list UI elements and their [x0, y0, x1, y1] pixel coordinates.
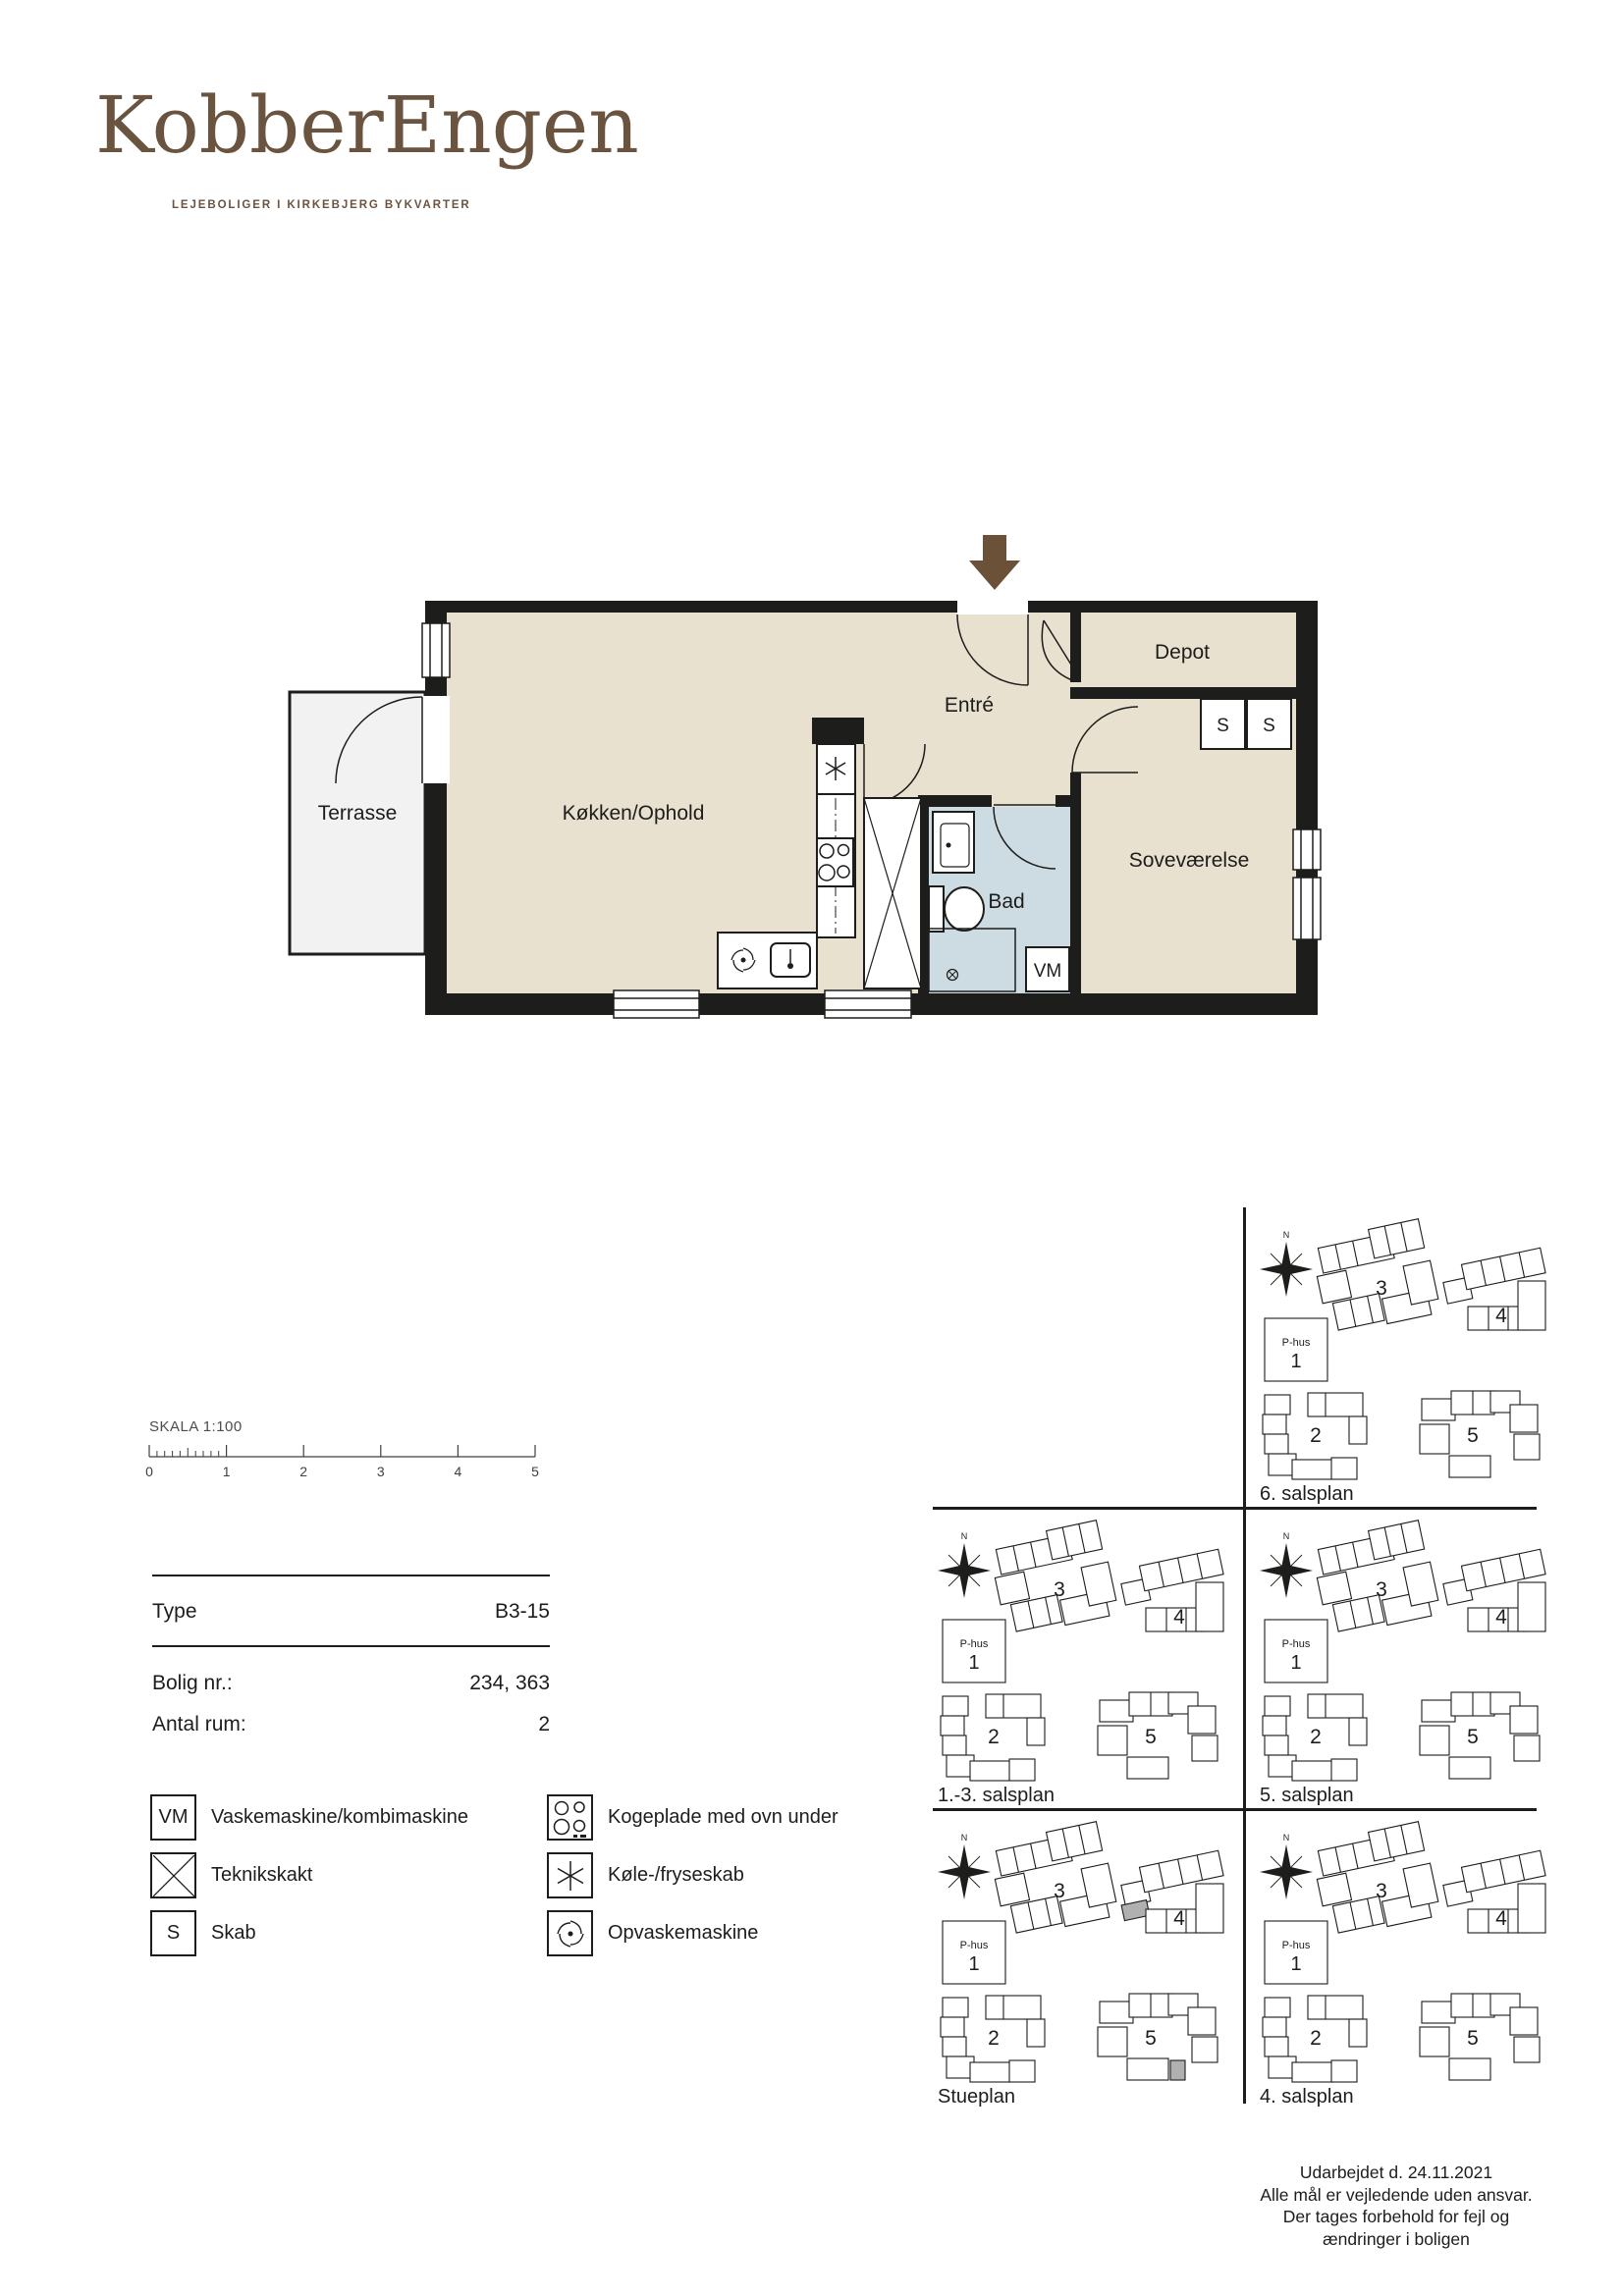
legend-item-fridge: Køle-/fryseskab — [547, 1852, 959, 1898]
legend-item-dishwasher: Opvaskemaskine — [547, 1910, 959, 1956]
legend-label: Skab — [211, 1922, 256, 1945]
building-4 — [1440, 1850, 1547, 1933]
building-label-2: 2 — [988, 1726, 1000, 1748]
label-storage: Depot — [1155, 641, 1210, 664]
label-washer: VM — [1034, 961, 1062, 982]
svg-text:4: 4 — [455, 1464, 462, 1479]
siteplan-map: N — [935, 1813, 1244, 2088]
window-bottom-1 — [614, 990, 699, 1018]
svg-text:0: 0 — [145, 1464, 153, 1479]
svg-text:N: N — [961, 1833, 968, 1842]
compass-icon: N — [938, 1531, 991, 1598]
window-bottom-2 — [825, 990, 911, 1018]
legend-item-washer: VM Vaskemaskine/kombimaskine — [150, 1794, 563, 1841]
legend-right: Kogeplade med ovn under Køle-/fryseskab — [547, 1794, 959, 1968]
building-4 — [1440, 1248, 1547, 1330]
compass-icon: N — [938, 1833, 991, 1899]
table-row: Bolig nr.: 234, 363 — [152, 1663, 550, 1704]
siteplan-panel-label: 1.-3. salsplan — [938, 1785, 1055, 1807]
table-row: Antal rum: 2 — [152, 1704, 550, 1745]
phus-label: P-hus — [1282, 1940, 1311, 1951]
svg-text:1: 1 — [223, 1464, 231, 1479]
siteplan-panel-label: Stueplan — [938, 2086, 1015, 2109]
building-label-1: 1 — [1290, 1351, 1301, 1372]
building-4 — [1118, 1549, 1225, 1631]
technical-shaft-symbol-icon — [150, 1852, 196, 1898]
siteplan-panel-label: 4. salsplan — [1260, 2086, 1354, 2109]
building-5 — [1420, 1692, 1540, 1779]
svg-text:5: 5 — [531, 1464, 539, 1479]
building-label-5: 5 — [1145, 2027, 1157, 2050]
washer-symbol-icon: VM — [150, 1794, 196, 1841]
footer-line: Der tages forbehold for fejl og — [1239, 2206, 1553, 2228]
building-label-4: 4 — [1173, 1907, 1185, 1930]
legend-label: Køle-/fryseskab — [608, 1864, 744, 1887]
label-cabinet-2: S — [1263, 716, 1275, 736]
svg-text:N: N — [1283, 1531, 1290, 1541]
label-terrace: Terrasse — [318, 802, 398, 825]
brand-tagline: LEJEBOLIGER I KIRKEBJERG BYKVARTER — [172, 199, 471, 211]
siteplan-map: N — [1257, 1813, 1566, 2088]
building-5 — [1420, 1391, 1540, 1477]
bath-sink-icon — [933, 812, 974, 873]
building-label-3: 3 — [1376, 1880, 1387, 1902]
building-label-3: 3 — [1376, 1277, 1387, 1300]
fridge-symbol-icon — [547, 1852, 593, 1898]
footer-line: ændringer i boligen — [1239, 2228, 1553, 2251]
building-label-2: 2 — [1310, 1726, 1322, 1748]
building-label-4: 4 — [1173, 1606, 1185, 1629]
kitchen-counter-bottom — [718, 933, 817, 988]
legend-label: Teknikskakt — [211, 1864, 312, 1887]
window-left — [422, 623, 450, 677]
siteplan-panel-label: 6. salsplan — [1260, 1483, 1354, 1506]
legend-label: Kogeplade med ovn under — [608, 1806, 839, 1829]
cabinets — [1201, 699, 1291, 749]
building-5 — [1098, 1692, 1218, 1779]
compass-icon: N — [1260, 1531, 1313, 1598]
phus-label: P-hus — [960, 1638, 989, 1650]
building-label-4: 4 — [1495, 1606, 1507, 1629]
window-right-1 — [1293, 829, 1321, 870]
phus-label: P-hus — [1282, 1638, 1311, 1650]
siteplan-map: N — [935, 1512, 1244, 1787]
scale-numbers: 0 1 2 3 4 5 — [145, 1464, 539, 1479]
svg-text:N: N — [1283, 1833, 1290, 1842]
footer-disclaimer: Udarbejdet d. 24.11.2021 Alle mål er vej… — [1239, 2162, 1553, 2250]
compass-icon: N — [1260, 1230, 1313, 1297]
phus-label: P-hus — [1282, 1337, 1311, 1349]
siteplan-map: N — [1257, 1512, 1566, 1787]
terrace-door-opening — [422, 696, 450, 783]
svg-text:N: N — [961, 1531, 968, 1541]
building-label-3: 3 — [1376, 1578, 1387, 1601]
legend-item-stove: Kogeplade med ovn under — [547, 1794, 959, 1841]
unit-number-value: 234, 363 — [469, 1672, 550, 1695]
footer-line: Udarbejdet d. 24.11.2021 — [1239, 2162, 1553, 2184]
siteplan-panel: N — [1257, 1813, 1566, 2117]
phus-label: P-hus — [960, 1940, 989, 1951]
building-label-4: 4 — [1495, 1907, 1507, 1930]
building-label-2: 2 — [1310, 1424, 1322, 1447]
siteplan-panel-label: 5. salsplan — [1260, 1785, 1354, 1807]
building-label-5: 5 — [1467, 1726, 1479, 1748]
building-4 — [1440, 1549, 1547, 1631]
siteplan-panel: N — [1257, 1210, 1566, 1515]
building-label-3: 3 — [1054, 1880, 1065, 1902]
entrance-arrow-icon — [969, 535, 1020, 590]
building-label-1: 1 — [1290, 1652, 1301, 1674]
entrance-opening — [957, 599, 1028, 614]
building-label-5: 5 — [1467, 2027, 1479, 2050]
label-bedroom: Soveværelse — [1129, 849, 1250, 872]
room-count-label: Antal rum: — [152, 1713, 246, 1736]
toilet-icon — [929, 886, 984, 932]
footer-line: Alle mål er vejledende uden ansvar. — [1239, 2184, 1553, 2207]
unit-number-label: Bolig nr.: — [152, 1672, 233, 1695]
label-cabinet-1: S — [1217, 716, 1229, 736]
building-label-1: 1 — [968, 1652, 979, 1674]
svg-text:2: 2 — [299, 1464, 307, 1479]
building-5 — [1098, 1994, 1218, 2080]
brand-logo: KobberEngen — [95, 86, 639, 165]
scale-label: SKALA 1:100 — [149, 1418, 243, 1435]
type-label: Type — [152, 1600, 197, 1624]
siteplan-map: N — [1257, 1210, 1566, 1485]
legend-left: VM Vaskemaskine/kombimaskine Teknikskakt… — [150, 1794, 563, 1968]
floorplan-sheet: KobberEngen LEJEBOLIGER I KIRKEBJERG BYK… — [0, 0, 1624, 2296]
label-bath: Bad — [988, 890, 1024, 913]
stove-symbol-icon — [547, 1794, 593, 1841]
table-row: Type B3-15 — [152, 1575, 550, 1647]
label-entry: Entré — [945, 694, 994, 717]
legend-item-technical-shaft: Teknikskakt — [150, 1852, 563, 1898]
compass-icon: N — [1260, 1833, 1313, 1899]
window-right-2 — [1293, 878, 1321, 939]
room-count-value: 2 — [538, 1713, 550, 1736]
building-label-1: 1 — [1290, 1953, 1301, 1975]
info-table: Type B3-15 Bolig nr.: 234, 363 Antal rum… — [152, 1575, 550, 1745]
label-kitchen-living: Køkken/Ophold — [563, 802, 705, 825]
siteplan-panel: N — [1257, 1512, 1566, 1816]
building-label-1: 1 — [968, 1953, 979, 1975]
building-label-2: 2 — [988, 2027, 1000, 2050]
dishwasher-symbol-icon — [547, 1910, 593, 1956]
type-value: B3-15 — [495, 1600, 550, 1624]
svg-text:3: 3 — [377, 1464, 385, 1479]
legend-label: Opvaskemaskine — [608, 1922, 758, 1945]
legend-item-cabinet: S Skab — [150, 1910, 563, 1956]
building-label-5: 5 — [1145, 1726, 1157, 1748]
siteplan-panel: N — [935, 1813, 1244, 2117]
cabinet-symbol-icon: S — [150, 1910, 196, 1956]
legend-label: Vaskemaskine/kombimaskine — [211, 1806, 468, 1829]
building-label-3: 3 — [1054, 1578, 1065, 1601]
building-5 — [1420, 1994, 1540, 2080]
scale-bar: SKALA 1:100 0 1 2 3 4 5 — [137, 1412, 560, 1495]
scale-minor-ticks — [157, 1448, 219, 1457]
building-label-5: 5 — [1467, 1424, 1479, 1447]
siteplan-panel: N — [935, 1512, 1244, 1816]
building-label-4: 4 — [1495, 1305, 1507, 1327]
building-label-2: 2 — [1310, 2027, 1322, 2050]
floor-plan: Terrasse Køkken/Ophold Entré Depot Sovev… — [275, 535, 1345, 1045]
building-4 — [1114, 1850, 1228, 1933]
svg-text:N: N — [1283, 1230, 1290, 1240]
